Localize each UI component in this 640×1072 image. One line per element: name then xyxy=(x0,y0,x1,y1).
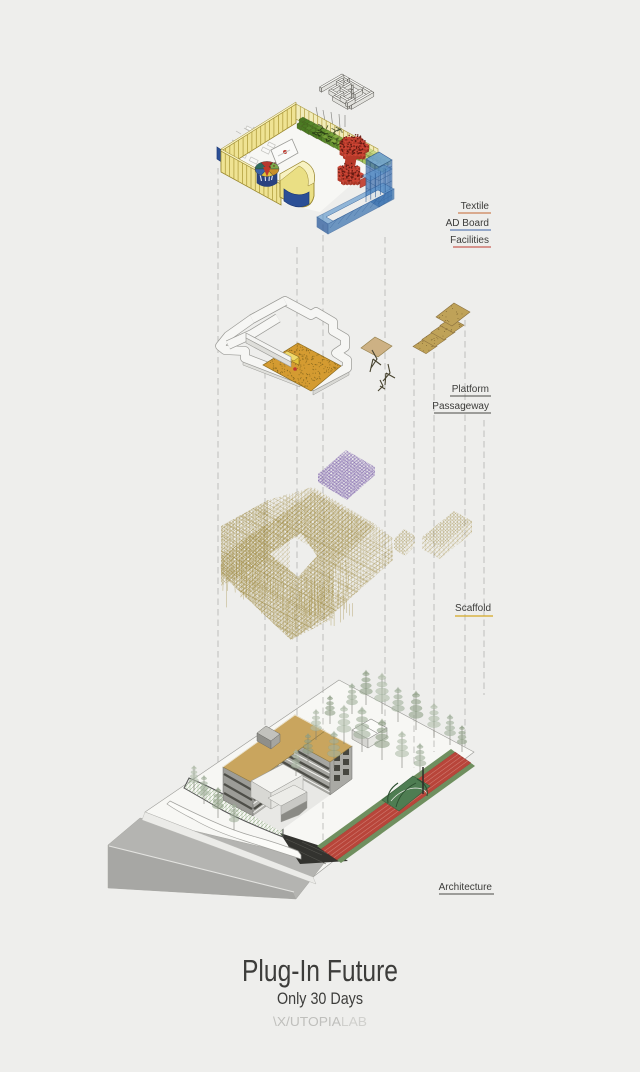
svg-text:Passageway: Passageway xyxy=(432,401,489,412)
svg-text:AD Board: AD Board xyxy=(446,218,489,229)
svg-text:Plug-In Future: Plug-In Future xyxy=(242,953,398,988)
svg-text:Only 30 Days: Only 30 Days xyxy=(277,989,363,1008)
svg-text:Facilities: Facilities xyxy=(450,235,489,246)
svg-text:Architecture: Architecture xyxy=(439,882,493,893)
svg-text:Platform: Platform xyxy=(452,384,489,395)
svg-text:Textile: Textile xyxy=(461,201,490,212)
svg-text:Scaffold: Scaffold xyxy=(455,603,491,614)
svg-text:\X/UTOPIALAB: \X/UTOPIALAB xyxy=(273,1014,367,1029)
